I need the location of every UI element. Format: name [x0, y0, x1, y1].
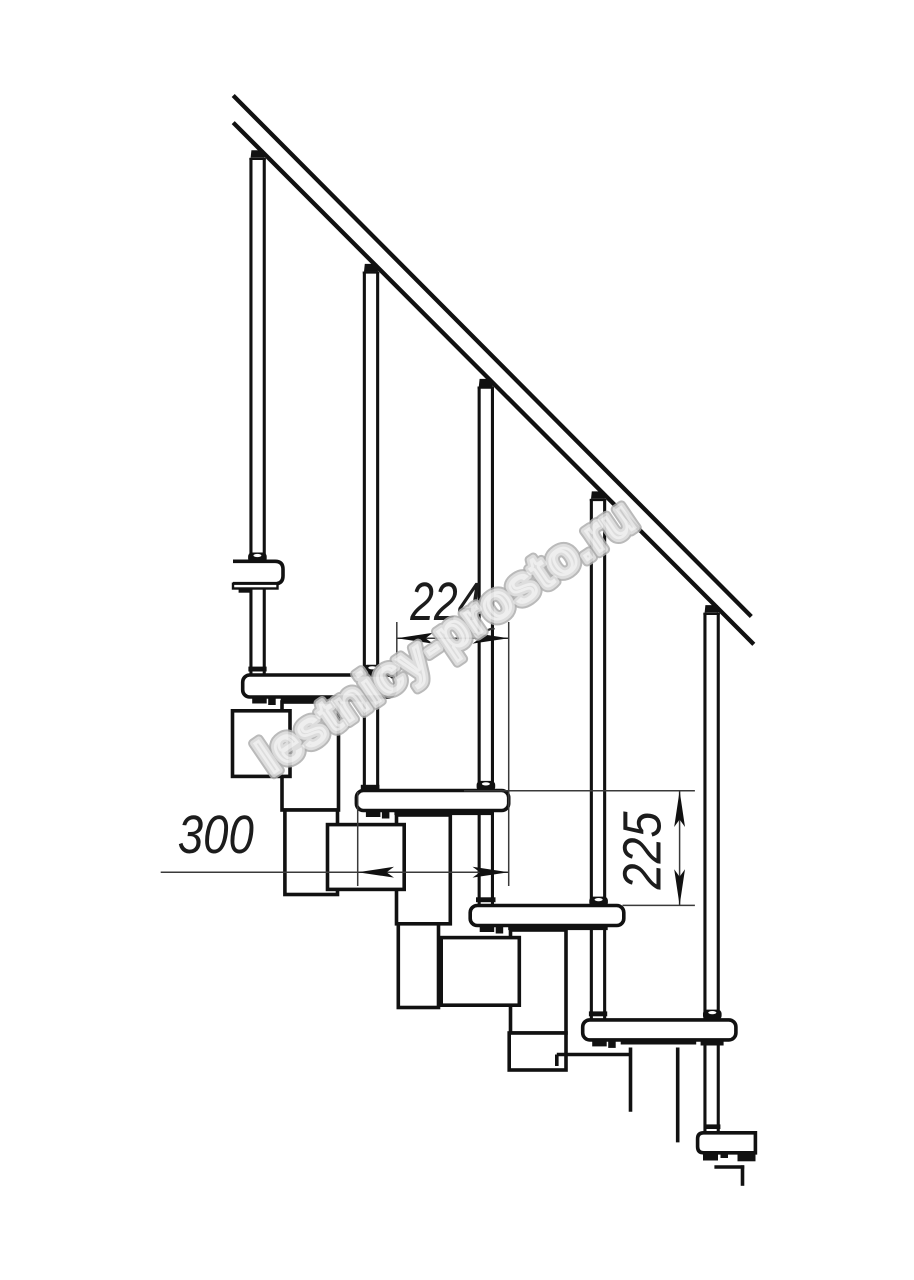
svg-text:300: 300	[178, 805, 254, 865]
svg-text:225: 225	[613, 811, 673, 891]
